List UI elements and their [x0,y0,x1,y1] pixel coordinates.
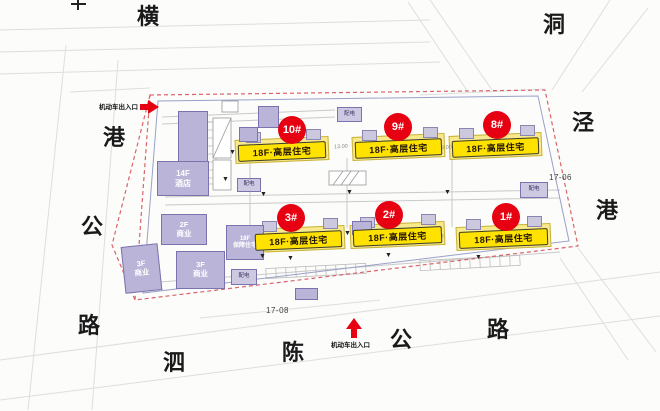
entry-marker-icon: ▼ [475,254,482,261]
small-structure [258,106,279,128]
hotel-tower [178,111,208,166]
building-1-core [527,216,542,227]
building-2-core [421,214,436,225]
commercial-3f-west: 3F 商业 [121,243,163,294]
site-plan: 横 港 公 路 洞 泾 港 泗 陈 公 路 机动车出入口 机动车出入口 17-0… [0,0,660,411]
building-3-core [262,221,277,232]
road-char-east-2: 港 [596,200,618,222]
hotel-podium: 14F 酒店 [157,161,209,196]
entry-marker-icon: ▼ [346,189,353,196]
building-8-core [459,128,474,139]
small-structure [239,127,258,142]
building-1-core [466,219,481,230]
entry-marker-icon: ▼ [229,149,236,156]
road-char-south-2: 公 [390,329,412,351]
road-char-west-3: 路 [78,315,100,337]
road-char-south-0: 泗 [163,352,185,374]
road-char-west-0: 横 [137,6,159,28]
road-char-south-3: 路 [487,319,509,341]
entrance-arrow-bottom-icon [346,318,362,338]
utility-box: 配电 [231,269,257,285]
road-char-south-1: 陈 [282,342,304,364]
parcel-label-17-08: 17-08 [266,306,289,315]
road-char-west-1: 港 [103,127,125,149]
entry-marker-icon: ▼ [260,191,267,198]
utility-box: 配电 [237,178,261,192]
utility-box: 配电 [337,107,362,122]
dimension-label: 13.00 [334,144,348,151]
survey-cross-mark [71,0,86,10]
building-9-core [423,127,438,138]
building-3-badge: 3# [277,204,305,232]
entry-marker-icon: ▼ [259,253,266,260]
commercial-2f: 2F 商业 [161,214,207,245]
building-3-core [323,218,338,229]
building-9-core [362,130,377,141]
road-char-east-1: 泾 [572,112,594,134]
building-1-badge: 1# [492,203,520,231]
building-8-core [520,125,535,136]
parcel-label-17-06: 17-06 [549,173,572,182]
building-8-badge: 8# [483,111,511,139]
small-structure [295,288,318,300]
building-2-badge: 2# [375,201,403,229]
entry-marker-icon: ▼ [444,189,451,196]
building-10-badge: 10# [278,116,306,144]
site-plan-linework [0,0,660,411]
entrance-label-bottom: 机动车出入口 [331,339,370,349]
entrance-arrow-top-icon [140,100,159,114]
road-char-west-2: 公 [81,216,103,238]
commercial-3f-mid: 3F 商业 [176,251,225,289]
road-char-east-0: 洞 [543,14,565,36]
entry-marker-icon: ▼ [287,255,294,262]
entry-marker-icon: ▼ [222,176,229,183]
entrance-label-top: 机动车出入口 [99,101,138,111]
building-9-badge: 9# [384,113,412,141]
entry-marker-icon: ▼ [344,230,351,237]
building-10-core [306,129,321,140]
utility-box: 配电 [520,182,548,198]
entry-marker-icon: ▼ [385,252,392,259]
